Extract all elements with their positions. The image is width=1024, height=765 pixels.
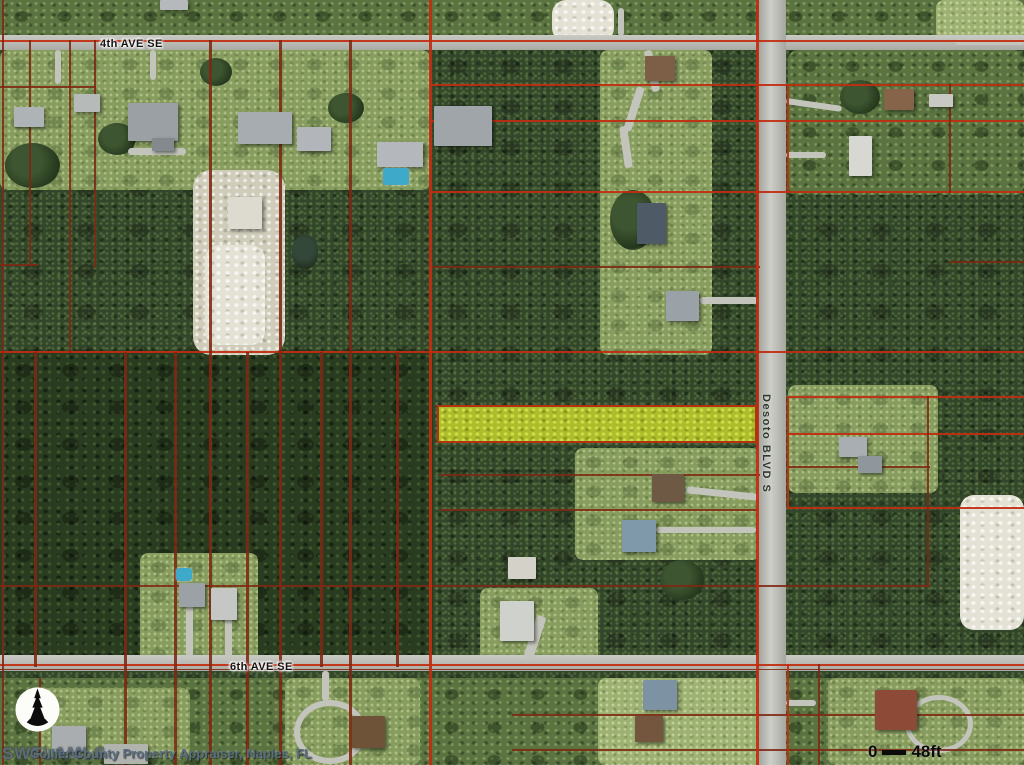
parcel-line bbox=[2, 0, 4, 765]
parcel-line bbox=[0, 664, 1024, 666]
house-roof bbox=[622, 520, 656, 552]
parcel-line bbox=[788, 507, 1024, 509]
parcel-line bbox=[34, 352, 37, 667]
driveway bbox=[322, 671, 329, 701]
parcel-line bbox=[512, 749, 1024, 751]
parcel-line bbox=[174, 352, 177, 765]
house-roof bbox=[179, 583, 205, 607]
street-label-4th-ave-se: 4th AVE SE bbox=[100, 38, 163, 50]
sand-pit bbox=[960, 495, 1024, 630]
house-roof bbox=[929, 94, 953, 107]
tree-clump bbox=[660, 560, 704, 600]
parcel-line bbox=[124, 352, 127, 765]
driveway bbox=[786, 152, 826, 158]
shed-roof bbox=[508, 557, 536, 579]
scrub-area bbox=[0, 0, 1024, 36]
parcel-line bbox=[787, 396, 789, 509]
parcel-line bbox=[246, 352, 249, 765]
highlighted-parcel bbox=[437, 405, 757, 443]
house-roof bbox=[14, 107, 44, 127]
house-roof bbox=[500, 601, 534, 641]
swimming-pool bbox=[176, 568, 192, 581]
parcel-line bbox=[788, 396, 1024, 398]
parcel-line bbox=[927, 396, 929, 587]
lawn-area bbox=[936, 0, 1024, 40]
parcel-line bbox=[396, 352, 399, 667]
scale-start: 0 bbox=[868, 742, 877, 762]
shed-roof bbox=[228, 197, 262, 229]
house-roof bbox=[297, 127, 331, 151]
tree-clump bbox=[5, 143, 60, 188]
parcel-line bbox=[209, 40, 212, 765]
house-roof bbox=[211, 588, 237, 620]
house-roof bbox=[645, 56, 675, 81]
parcel-line bbox=[349, 40, 352, 765]
driveway bbox=[786, 700, 816, 706]
parcel-line bbox=[430, 84, 1024, 86]
cleared-sand-area bbox=[205, 245, 265, 345]
parcel-line bbox=[949, 261, 1024, 263]
lawn-area bbox=[140, 553, 258, 663]
house-roof bbox=[352, 716, 385, 748]
driveway bbox=[700, 297, 758, 304]
road-desoto-blvd-s bbox=[758, 0, 786, 765]
house-roof bbox=[858, 456, 882, 473]
street-label-desoto-blvd-s: Desoto BLVD S bbox=[760, 394, 772, 524]
parcel-line bbox=[818, 664, 820, 765]
house-roof bbox=[152, 138, 174, 151]
aerial-parcel-map: 4th AVE SE 6th AVE SE Desoto BLVD S 0 48… bbox=[0, 0, 1024, 765]
lawn-area bbox=[575, 448, 760, 560]
driveway bbox=[55, 50, 61, 84]
house-roof bbox=[434, 106, 492, 146]
tree-clump bbox=[328, 93, 364, 123]
parcel-line bbox=[0, 669, 1024, 670]
house-roof bbox=[884, 89, 914, 110]
house-roof bbox=[128, 103, 178, 141]
parcel-line bbox=[320, 352, 323, 667]
house-roof bbox=[652, 474, 684, 502]
pond bbox=[292, 235, 318, 269]
house-roof bbox=[635, 716, 663, 742]
parcel-line bbox=[29, 40, 31, 266]
house-roof bbox=[637, 203, 666, 244]
house-roof bbox=[74, 94, 100, 112]
parcel-line bbox=[69, 40, 71, 353]
appraiser-attribution: Collier County Property Appraiser, Naple… bbox=[30, 746, 312, 761]
north-arrow-icon bbox=[14, 686, 61, 733]
house-roof bbox=[666, 291, 699, 321]
parcel-line bbox=[430, 266, 760, 268]
scale-bar-segment bbox=[882, 750, 906, 755]
parcel-line bbox=[0, 585, 930, 587]
parcel-line bbox=[788, 433, 1024, 435]
scale-end: 48ft bbox=[911, 742, 941, 762]
driveway bbox=[656, 527, 756, 533]
house-roof bbox=[238, 112, 292, 144]
parcel-line bbox=[440, 474, 760, 476]
parcel-line bbox=[512, 714, 1024, 716]
parcel-line bbox=[0, 351, 1024, 353]
house-roof bbox=[875, 690, 917, 730]
scale-bar: 0 48ft bbox=[868, 742, 942, 762]
parcel-line bbox=[429, 0, 432, 765]
driveway bbox=[186, 605, 193, 657]
parcel-line bbox=[0, 86, 96, 88]
street-label-6th-ave-se: 6th AVE SE bbox=[230, 661, 293, 673]
parcel-line bbox=[0, 264, 38, 266]
parcel-line bbox=[279, 40, 282, 765]
parcel-line bbox=[94, 40, 96, 268]
house-roof bbox=[160, 0, 188, 10]
house-roof bbox=[839, 437, 867, 457]
tree-clump bbox=[200, 58, 232, 86]
house-roof bbox=[377, 142, 423, 167]
parcel-line bbox=[756, 0, 759, 765]
house-roof bbox=[849, 136, 872, 176]
driveway bbox=[225, 618, 232, 658]
house-roof bbox=[643, 680, 677, 710]
swimming-pool bbox=[383, 168, 409, 185]
driveway bbox=[150, 50, 156, 80]
scrub-area bbox=[788, 50, 1024, 195]
parcel-line bbox=[430, 191, 1024, 193]
parcel-line bbox=[430, 120, 1024, 122]
parcel-line bbox=[787, 84, 789, 192]
parcel-line bbox=[787, 664, 789, 765]
driveway bbox=[618, 8, 624, 36]
parcel-line bbox=[440, 509, 758, 511]
